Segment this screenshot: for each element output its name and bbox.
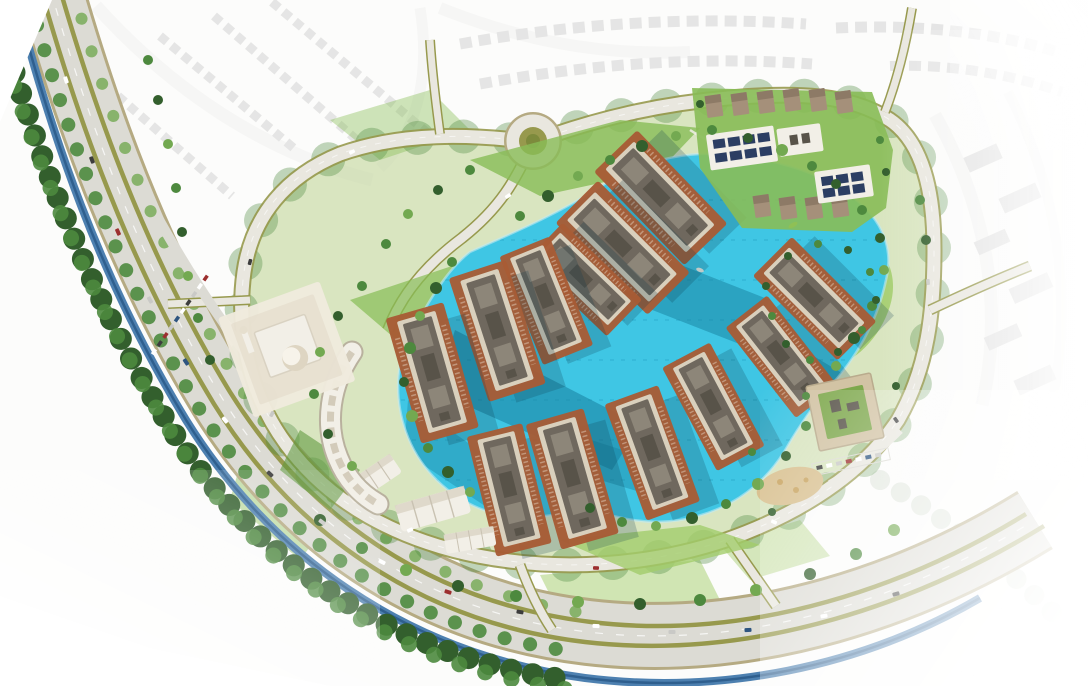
masterplan-rendering: Aerial masterplan rendering of a waterfr…	[0, 0, 1088, 686]
masterplan-svg: Aerial masterplan rendering of a waterfr…	[0, 0, 1088, 686]
